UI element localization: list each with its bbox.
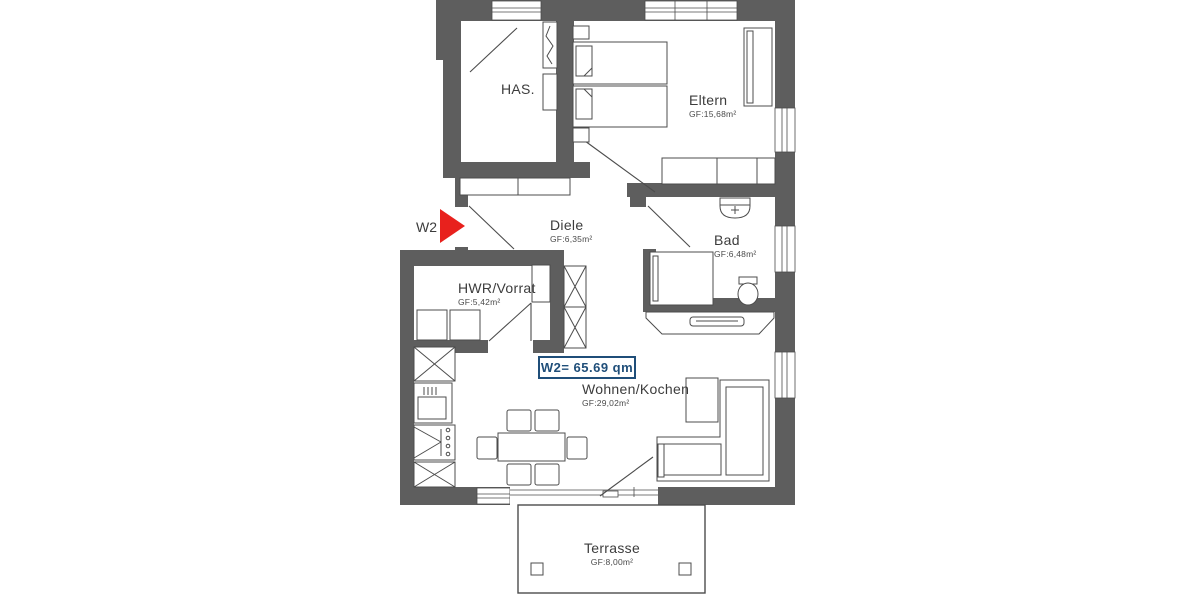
wall-topleft-stub bbox=[436, 0, 444, 60]
hall-tall-cabinet bbox=[564, 266, 586, 348]
room-name: HAS. bbox=[501, 82, 535, 97]
bad-shower bbox=[650, 252, 713, 305]
door-hwr bbox=[489, 303, 531, 341]
floor-plan-drawing bbox=[0, 0, 1200, 600]
floor-plan: HAS. Eltern GF:15,68m² Diele GF:6,35m² B… bbox=[0, 0, 1200, 600]
side-table bbox=[686, 378, 718, 422]
wall-bad-left-stub bbox=[630, 183, 646, 207]
kitchen-stove bbox=[414, 425, 455, 460]
window-eltern-top bbox=[645, 1, 737, 20]
bad-sink bbox=[720, 198, 750, 218]
entrance-label: W2 bbox=[416, 219, 437, 235]
eltern-double-bed bbox=[573, 42, 667, 127]
room-label-wohnen: Wohnen/Kochen GF:29,02m² bbox=[582, 382, 689, 408]
hwr-dryer bbox=[450, 310, 480, 340]
window-wohnen-right bbox=[775, 352, 795, 398]
wall-hwr-bottom-right bbox=[533, 340, 564, 353]
room-label-diele: Diele GF:6,35m² bbox=[550, 218, 592, 244]
room-label-eltern: Eltern GF:15,68m² bbox=[689, 93, 736, 119]
tv-sideboard bbox=[646, 312, 774, 334]
has-electrical-panel-icon bbox=[543, 22, 557, 110]
window-eltern-right bbox=[775, 108, 795, 152]
kitchen-cabinet-top bbox=[414, 347, 455, 381]
kitchen-cabinet-bottom bbox=[414, 462, 455, 487]
window-has-top bbox=[492, 1, 541, 20]
room-label-has: HAS. bbox=[501, 82, 535, 97]
terrace-door bbox=[510, 487, 658, 505]
room-area: GF:6,35m² bbox=[550, 235, 592, 244]
room-name: Bad bbox=[714, 233, 756, 248]
door-entrance bbox=[469, 206, 514, 249]
door-eltern bbox=[585, 141, 655, 192]
wall-hwr-top bbox=[400, 250, 564, 266]
window-bad-right bbox=[775, 226, 795, 272]
room-label-bad: Bad GF:6,48m² bbox=[714, 233, 756, 259]
eltern-sideboard bbox=[662, 158, 775, 184]
eltern-nightstand-top bbox=[573, 26, 589, 39]
apartment-area-badge: W2= 65.69 qm bbox=[538, 356, 636, 379]
room-name: Eltern bbox=[689, 93, 736, 108]
kitchen-sink bbox=[414, 383, 452, 423]
wall-left-lower bbox=[400, 253, 414, 505]
diele-sideboard bbox=[460, 178, 570, 195]
room-area: GF:5,42m² bbox=[458, 298, 536, 307]
wall-hwr-right bbox=[550, 250, 564, 353]
bad-toilet bbox=[738, 277, 758, 305]
room-name: Wohnen/Kochen bbox=[582, 382, 689, 397]
room-label-terrasse: Terrasse GF:8,00m² bbox=[584, 541, 640, 567]
door-bad bbox=[648, 206, 690, 247]
window-wohnen-bottom bbox=[477, 488, 510, 504]
wall-has-left bbox=[443, 0, 461, 165]
room-name: Terrasse bbox=[584, 541, 640, 556]
entrance-arrow-icon bbox=[440, 209, 465, 243]
room-area: GF:8,00m² bbox=[584, 558, 640, 567]
room-area: GF:6,48m² bbox=[714, 250, 756, 259]
room-name: Diele bbox=[550, 218, 592, 233]
dining-table bbox=[498, 433, 565, 461]
room-label-hwr: HWR/Vorrat GF:5,42m² bbox=[458, 281, 536, 307]
wall-has-eltern bbox=[556, 0, 574, 164]
room-name: HWR/Vorrat bbox=[458, 281, 536, 296]
eltern-wardrobe bbox=[744, 28, 772, 106]
eltern-nightstand-bottom bbox=[573, 128, 589, 142]
door-has bbox=[470, 28, 517, 72]
room-area: GF:15,68m² bbox=[689, 110, 736, 119]
hwr-washer bbox=[417, 310, 447, 340]
room-area: GF:29,02m² bbox=[582, 399, 689, 408]
